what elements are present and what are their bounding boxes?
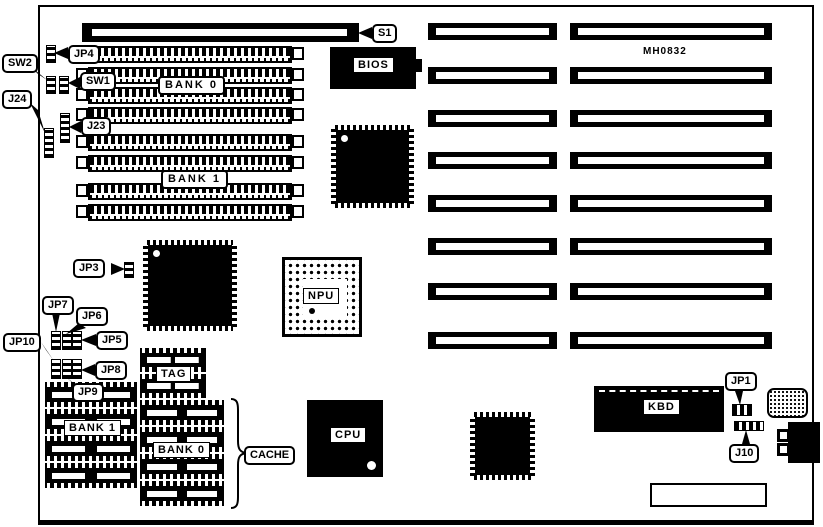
jp10-callout: JP10	[3, 333, 41, 352]
jp8-callout: JP8	[95, 361, 127, 380]
cache-callout: CACHE	[244, 446, 295, 465]
j24-callout: J24	[2, 90, 32, 109]
simm-bank0-label: BANK 0	[158, 76, 225, 95]
jp9-callout: JP9	[72, 383, 104, 402]
callout-lines	[0, 0, 823, 527]
s1-callout: S1	[372, 24, 397, 43]
kbd-label: KBD	[643, 399, 680, 415]
tag-label: TAG	[156, 366, 191, 382]
j23-callout: J23	[81, 117, 111, 136]
cache-bank1-label: BANK 1	[64, 420, 121, 436]
jp6-callout: JP6	[76, 307, 108, 326]
cache-bank0-label: BANK 0	[153, 442, 210, 458]
jp4-callout: JP4	[68, 45, 100, 64]
jp1-callout: JP1	[725, 372, 757, 391]
board-part-number: MH0832	[643, 46, 687, 57]
jp7-callout: JP7	[42, 296, 74, 315]
jp5-callout: JP5	[96, 331, 128, 350]
motherboard-diagram: S1 JP4 SW2 SW1 J24 J23 JP3 JP7 JP6 JP5 J…	[0, 0, 823, 527]
npu-label: NPU	[303, 288, 339, 304]
cpu-label: CPU	[330, 427, 366, 443]
bios-label: BIOS	[353, 57, 394, 73]
sw2-callout: SW2	[2, 54, 38, 73]
simm-bank1-label: BANK 1	[161, 170, 228, 189]
jp3-callout: JP3	[73, 259, 105, 278]
j10-callout: J10	[729, 444, 759, 463]
sw1-callout: SW1	[80, 72, 116, 91]
